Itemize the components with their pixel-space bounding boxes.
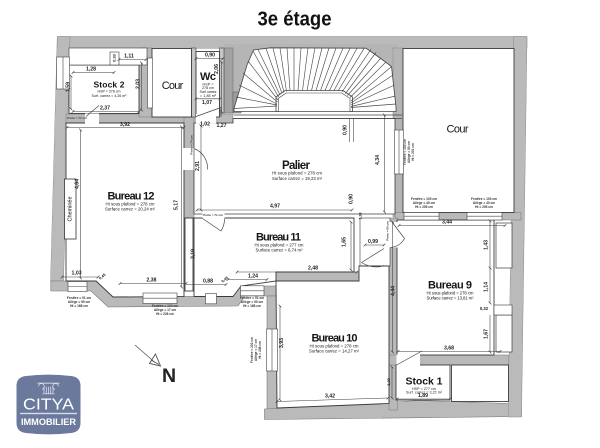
- svg-text:Ht sous plafond = 278 cm: Ht sous plafond = 278 cm: [310, 343, 359, 348]
- svg-text:2,38: 2,38: [146, 278, 156, 284]
- svg-text:5,17: 5,17: [174, 200, 180, 210]
- svg-text:Ht = 226 cm: Ht = 226 cm: [156, 312, 174, 316]
- svg-text:2,91: 2,91: [195, 161, 201, 171]
- svg-text:1,30: 1,30: [386, 377, 391, 386]
- svg-text:1,89: 1,89: [418, 393, 428, 399]
- svg-text:3,92: 3,92: [120, 122, 130, 128]
- svg-text:3,93: 3,93: [279, 338, 285, 348]
- svg-text:0,33: 0,33: [112, 53, 117, 62]
- svg-text:4,44: 4,44: [391, 286, 397, 296]
- svg-text:CITYA: CITYA: [23, 397, 75, 414]
- svg-text:Ht = 168 cm: Ht = 168 cm: [243, 304, 261, 308]
- svg-text:1,03: 1,03: [72, 271, 82, 277]
- svg-text:0,99: 0,99: [368, 239, 378, 245]
- svg-text:0,90: 0,90: [349, 194, 355, 204]
- svg-text:1,07: 1,07: [202, 100, 212, 106]
- svg-text:1,24: 1,24: [248, 274, 258, 280]
- svg-text:3,42: 3,42: [325, 394, 335, 400]
- svg-text:1,59: 1,59: [66, 82, 72, 92]
- svg-text:1,43: 1,43: [484, 240, 490, 250]
- svg-text:Surface carrez = 19,23 m²: Surface carrez = 19,23 m²: [272, 176, 323, 181]
- svg-text:Ht sous plafond = 277 cm: Ht sous plafond = 277 cm: [255, 242, 304, 247]
- svg-text:1,65: 1,65: [342, 237, 348, 247]
- svg-text:Cour: Cour: [162, 80, 184, 92]
- svg-text:2,06: 2,06: [214, 64, 220, 74]
- svg-text:= 1,85 m²: = 1,85 m²: [200, 94, 217, 98]
- svg-text:Stock 2: Stock 2: [94, 80, 125, 90]
- svg-text:4,34: 4,34: [375, 155, 381, 165]
- svg-text:1,02: 1,02: [200, 122, 210, 128]
- svg-text:1,27: 1,27: [216, 123, 226, 129]
- svg-text:1,28: 1,28: [86, 67, 96, 73]
- svg-text:Ht sous plafond = 278 cm: Ht sous plafond = 278 cm: [106, 201, 155, 206]
- svg-text:1,14: 1,14: [484, 282, 490, 292]
- svg-text:3e étage: 3e étage: [258, 8, 332, 31]
- svg-text:Porte = 71 cm: Porte = 71 cm: [203, 213, 223, 217]
- svg-text:3,44: 3,44: [442, 219, 452, 225]
- svg-text:2,48: 2,48: [308, 266, 318, 272]
- svg-text:Porte = 74 cm: Porte = 74 cm: [190, 135, 194, 155]
- svg-text:3,68: 3,68: [444, 346, 454, 352]
- svg-text:1,38: 1,38: [359, 213, 363, 220]
- svg-text:Ht = 205 cm: Ht = 205 cm: [415, 205, 433, 209]
- svg-text:Surface carrez = 14,27 m²: Surface carrez = 14,27 m²: [309, 349, 360, 354]
- svg-text:Stock 1: Stock 1: [406, 376, 443, 388]
- svg-text:2,03: 2,03: [136, 79, 142, 89]
- svg-text:1,11: 1,11: [124, 54, 134, 60]
- svg-text:Porte = 90 cm: Porte = 90 cm: [386, 221, 390, 241]
- svg-text:2,19: 2,19: [191, 249, 197, 259]
- svg-text:IMMOBILIER: IMMOBILIER: [21, 417, 76, 428]
- svg-text:2,37: 2,37: [100, 106, 110, 112]
- svg-text:Ht = 205 cm: Ht = 205 cm: [475, 205, 493, 209]
- svg-text:0,90: 0,90: [205, 53, 215, 59]
- svg-text:Cour: Cour: [447, 124, 469, 136]
- svg-text:Ht = 201 cm: Ht = 201 cm: [411, 143, 415, 161]
- svg-text:Cheminée: Cheminée: [68, 196, 74, 221]
- svg-text:0,90: 0,90: [343, 125, 349, 135]
- svg-text:Surface carrez = 13,81 m²: Surface carrez = 13,81 m²: [427, 296, 475, 301]
- svg-text:Porte = 77 cm: Porte = 77 cm: [67, 116, 87, 120]
- svg-text:Ht sous plafond = 278 cm: Ht sous plafond = 278 cm: [272, 171, 322, 176]
- svg-text:Ht sous plafond = 278 cm: Ht sous plafond = 278 cm: [427, 290, 474, 295]
- svg-text:0,88: 0,88: [203, 279, 213, 285]
- svg-text:Surface carrez = 6,74 m²: Surface carrez = 6,74 m²: [256, 248, 304, 253]
- svg-text:1,67: 1,67: [484, 329, 490, 339]
- svg-text:Surf. carrez = 4,26 m²: Surf. carrez = 4,26 m²: [92, 94, 128, 98]
- svg-text:Ht = 168 cm: Ht = 168 cm: [70, 304, 88, 308]
- svg-text:4,64: 4,64: [75, 179, 81, 189]
- svg-text:Surface carrez = 20,24 m²: Surface carrez = 20,24 m²: [105, 207, 156, 212]
- svg-text:4,97: 4,97: [270, 204, 280, 210]
- svg-text:Ht = 208 cm: Ht = 208 cm: [258, 341, 262, 359]
- svg-text:0,32: 0,32: [480, 306, 489, 311]
- svg-text:N: N: [162, 365, 176, 387]
